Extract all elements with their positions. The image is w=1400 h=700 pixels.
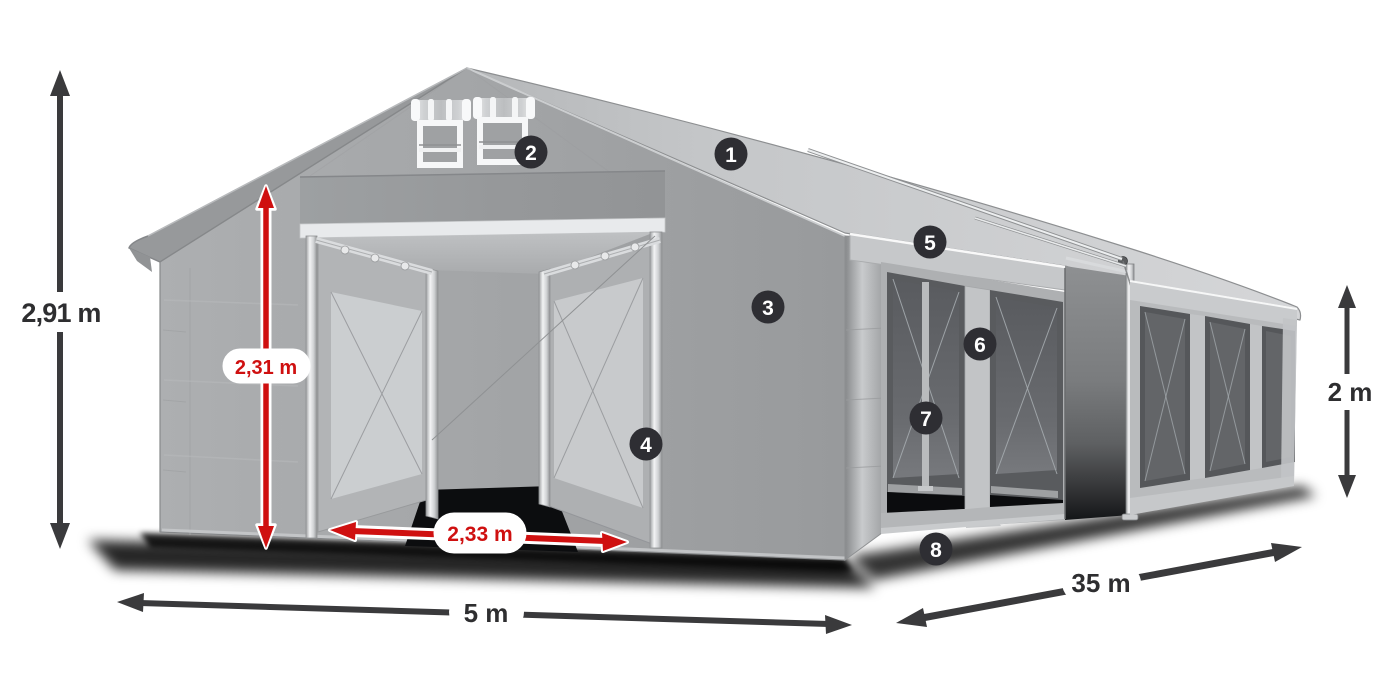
svg-text:5 m: 5 m: [464, 598, 509, 628]
svg-text:8: 8: [930, 539, 942, 562]
svg-text:3: 3: [762, 297, 774, 320]
svg-text:2,91 m: 2,91 m: [21, 298, 100, 328]
svg-text:1: 1: [725, 144, 737, 167]
svg-text:4: 4: [640, 434, 652, 457]
svg-text:2: 2: [525, 142, 537, 165]
svg-text:2,31 m: 2,31 m: [235, 357, 297, 379]
svg-text:2 m: 2 m: [1328, 377, 1373, 407]
svg-text:7: 7: [920, 408, 932, 431]
svg-text:2,33 m: 2,33 m: [447, 523, 512, 546]
svg-text:5: 5: [924, 232, 936, 255]
svg-text:35 m: 35 m: [1071, 568, 1130, 598]
svg-text:6: 6: [974, 334, 986, 357]
